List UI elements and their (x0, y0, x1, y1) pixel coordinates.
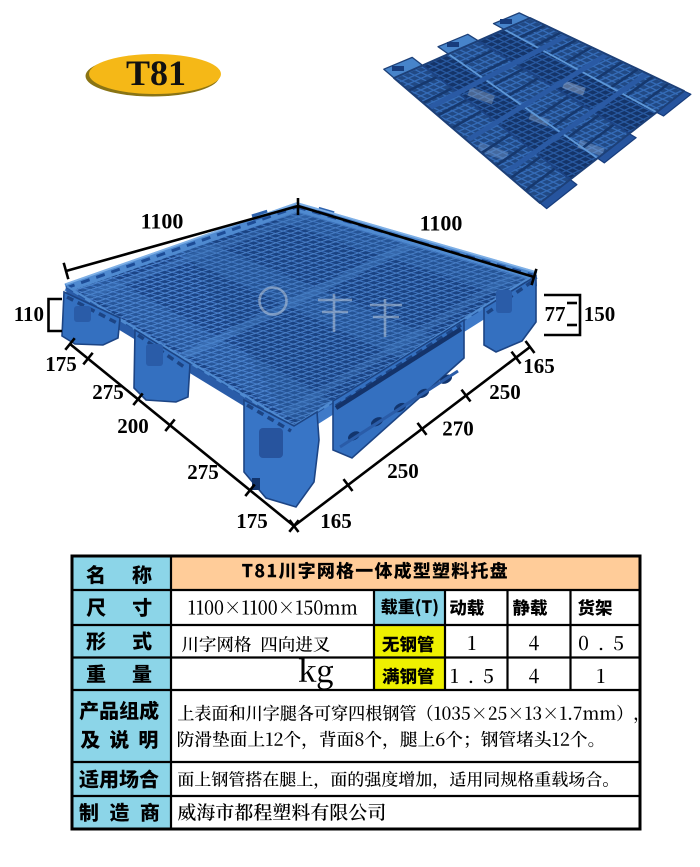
svg-text:275: 275 (92, 380, 124, 404)
svg-text:175: 175 (45, 352, 77, 376)
svg-text:275: 275 (187, 460, 219, 484)
svg-text:165: 165 (523, 354, 555, 378)
svg-text:1100: 1100 (420, 210, 463, 235)
svg-text:150: 150 (584, 302, 616, 326)
svg-text:250: 250 (489, 380, 521, 404)
svg-text:175: 175 (236, 509, 268, 533)
svg-text:T81: T81 (126, 53, 186, 93)
svg-text:250: 250 (387, 459, 419, 483)
svg-text:110: 110 (14, 302, 44, 326)
svg-text:270: 270 (442, 417, 474, 441)
svg-text:200: 200 (117, 414, 149, 438)
svg-text:77: 77 (545, 302, 566, 326)
svg-text:1100: 1100 (141, 208, 184, 233)
svg-text:165: 165 (320, 509, 352, 533)
